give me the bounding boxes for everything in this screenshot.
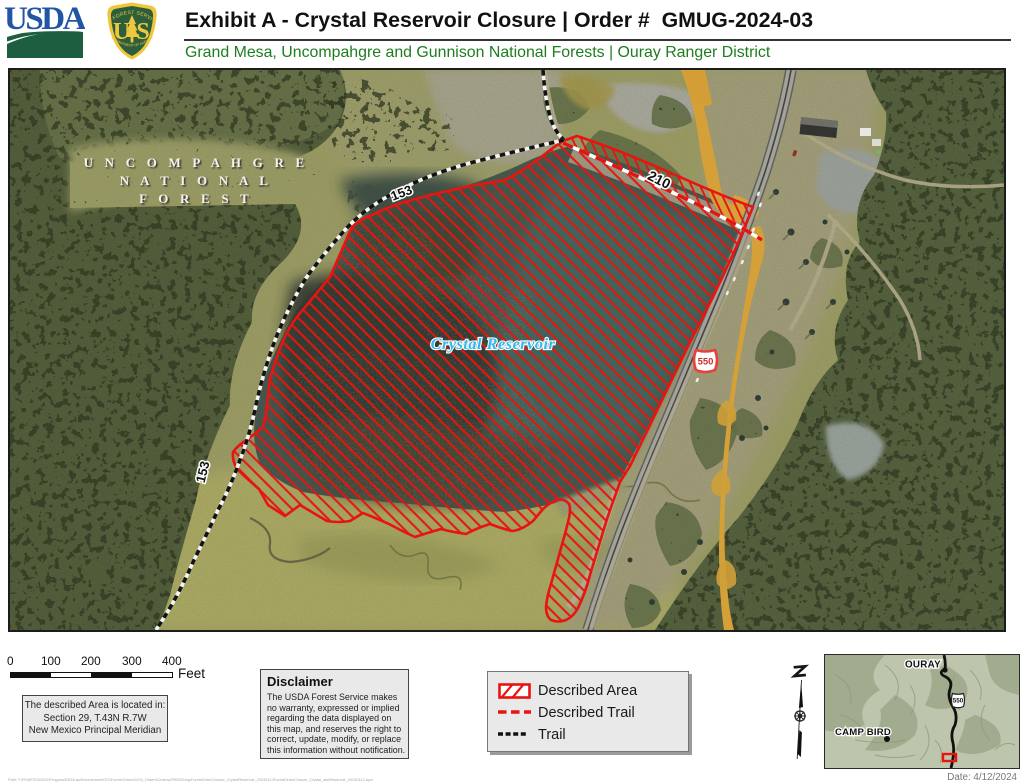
svg-text:OURAY: OURAY (905, 660, 941, 671)
svg-text:U N C O M P A H G R E: U N C O M P A H G R E (84, 155, 309, 170)
svg-text:F O R E S T: F O R E S T (139, 191, 253, 206)
svg-text:550: 550 (953, 698, 964, 705)
svg-text:CAMP BIRD: CAMP BIRD (835, 727, 891, 738)
svg-text:N A T I O N A L: N A T I O N A L (120, 173, 272, 188)
svg-text:550: 550 (698, 357, 714, 368)
svg-text:Crystal Reservoir: Crystal Reservoir (431, 334, 556, 353)
